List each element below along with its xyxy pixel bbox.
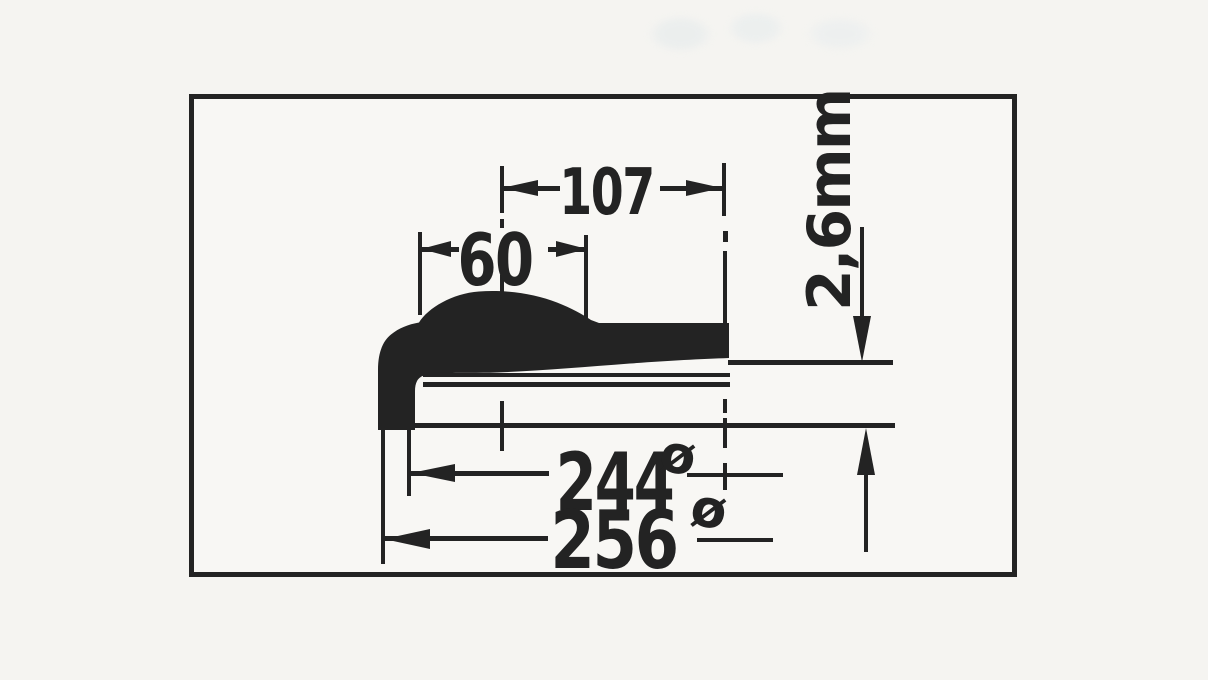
rim-centerline-dot [723,231,728,242]
dim-60-arrow-left [421,241,451,257]
rim-centerline-seg [722,163,726,216]
thickness-arrow-line-bottom [864,473,868,552]
cross-section-profile [376,288,732,430]
disc-inner-line-a [423,373,730,377]
thickness-arrow-up [857,428,875,475]
dim-244-arrow [411,464,455,482]
dim-256-arrow [384,529,430,549]
rim-centerline-seg [723,399,727,413]
hub-face-line [379,423,895,428]
dim-256-label: 256 [550,501,665,581]
dim-107-arrow-right [686,180,722,196]
scan-artifact [630,2,910,60]
dim-244-line-right [687,473,783,477]
cross-section-path [378,291,729,430]
thickness-arrow-down [853,316,871,362]
extension-line-244 [407,428,411,496]
hump-centerline-seg [500,401,504,451]
rim-centerline-seg [723,418,727,448]
scanned-drawing-page: 107 60 2,6mm 244 ø 256 ø [0,0,1208,680]
dim-60-label: 60 [452,224,538,296]
disc-inner-line-b [423,382,730,387]
dim-107-arrow-left [502,180,538,196]
dim-107-label: 107 [559,161,640,225]
thickness-label: 2,6mm [795,105,865,311]
dim-256-line-right [697,538,773,542]
rim-centerline-seg [723,251,727,324]
dim-60-arrow-right [556,241,587,257]
